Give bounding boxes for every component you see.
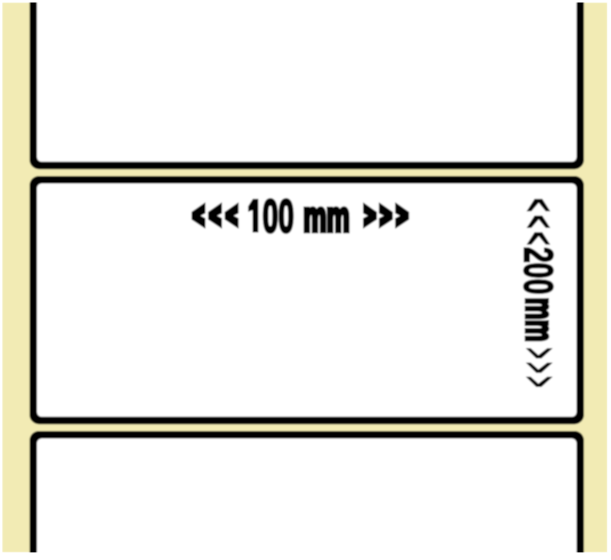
svg-text:200: 200	[515, 247, 560, 294]
svg-text:mm: mm	[518, 298, 561, 342]
svg-text:00: 00	[263, 190, 295, 242]
svg-text:mm: mm	[303, 193, 350, 240]
